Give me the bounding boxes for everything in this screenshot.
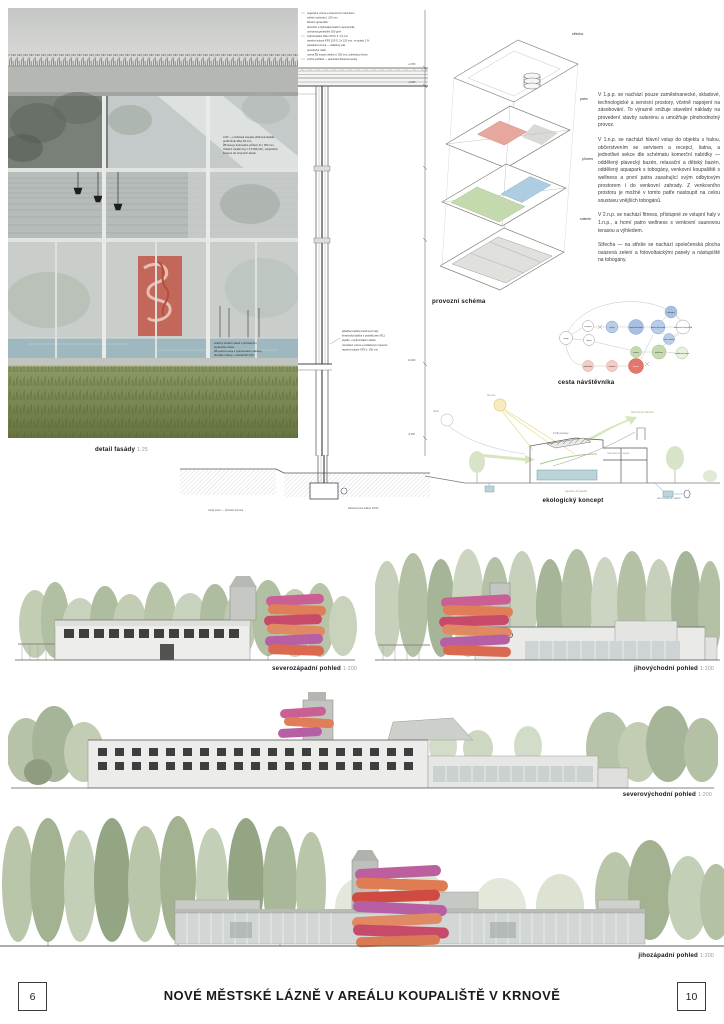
ground-note-2: štěrkové lože frakce 16/32 [348,506,379,510]
svg-text:tobogán: tobogán [667,311,675,314]
elevation-southeast [375,545,720,672]
svg-text:-0,450: -0,450 [408,433,415,436]
svg-text:bazénová hala: bazénová hala [629,327,643,329]
ground-hatch-right [284,473,430,497]
eco-green-arrows [483,416,637,464]
schema-label: provozní schéma [432,298,486,305]
svg-text:sauna: sauna [633,352,640,354]
plinth [8,358,298,366]
svg-text:kotvené do stropních desek: kotvené do stropních desek [223,151,257,155]
svg-text:rekuperace tepla: rekuperace tepla [607,451,630,455]
svg-text:skladba podlahy bazénové haly:: skladba podlahy bazénové haly: [342,329,379,333]
svg-text:filtrační geotextilie: filtrační geotextilie [307,20,328,24]
flow-node: šatna [584,335,595,346]
page-number-right: 10 [677,982,706,1011]
svg-text:střešní substrát tl. 100 mm: střešní substrát tl. 100 mm [307,16,338,20]
svg-text:hydroizolační fólie mPVC tl. 1: hydroizolační fólie mPVC tl. 1,5 mm [307,34,348,38]
slide-tower [278,692,334,742]
eco-label: ekologický koncept [473,497,673,504]
axon-ground-plate [442,164,566,226]
glass-facade [8,92,298,358]
exploded-axon: střecha patro přízemí suterén [440,20,600,305]
axon-floor-plate [446,106,570,168]
svg-text:přirozené větrání: přirozené větrání [631,410,654,414]
svg-text:recepce: recepce [584,325,592,328]
svg-text:tepelného mostu,: tepelného mostu, [214,345,235,349]
description-paragraph-3: V 2.n.p. se nachází fitness, přístupné z… [598,212,720,235]
svg-text:wellness: wellness [655,352,663,354]
facade-detail-foundation: rostlý terén — původní zemina štěrkové l… [180,455,430,520]
svg-text:tepelné čerpadlo: tepelné čerpadlo [565,489,588,493]
detail-label: detail fasády1:25 [95,446,148,453]
flow-node: relax. bazén [663,334,675,345]
elevation-se-label: jihovýchodní pohled1:200 [558,665,714,672]
svg-text:pokladna: pokladna [584,366,593,368]
flow-node: sauna [631,347,642,358]
elevation-northeast [8,688,718,800]
svg-text:tepelná izolace XPS tl. 160 mm: tepelná izolace XPS tl. 160 mm [342,347,378,351]
svg-text:patro: patro [580,97,588,101]
flow-node: bazénová hala [629,320,644,335]
flow-node: šatny [606,321,618,333]
foreground-grass [8,366,298,438]
svg-text:±0,000: ±0,000 [408,359,416,362]
flow-node: recepce [583,321,594,332]
svg-text:drenážní a hydroakumulační nop: drenážní a hydroakumulační nopová fólie [307,25,355,29]
description-text: V 1.p.p. se nachází pouze zaměstnanecké,… [598,92,720,272]
elevation-nw-label: severozápadní pohled1:200 [207,665,357,672]
flow-node: pokladna [583,361,594,372]
flow-node: venkovní koupaliště [674,320,693,334]
svg-text:vegetační vrstva s extenzivním: vegetační vrstva s extenzivním trávníkem [307,11,355,15]
svg-text:nosná ŽB stropní deska tl. 250: nosná ŽB stropní deska tl. 250 mm, pohle… [307,51,368,56]
axon-roof-plate [454,40,578,102]
axon-level-labels: střecha patro přízemí suterén [572,32,593,221]
description-paragraph-1: V 1.p.p. se nachází pouze zaměstnanecké,… [598,92,720,130]
svg-text:drenážní násyp + drenáž DN 100: drenážní násyp + drenáž DN 100 [214,353,254,357]
svg-text:plavecký bazén: plavecký bazén [651,327,666,329]
flow-node: venkovní terasa [675,347,691,359]
flow-node: zázemí [607,361,618,372]
facade-detail-drawing: vegetační vrstva s extenzivním trávníkem… [298,8,430,460]
ground-note: rostlý terén — původní zemina [208,508,244,512]
svg-text:tepelná izolace EPS 150 S, 2×: tepelná izolace EPS 150 S, 2× 120 mm, ve… [307,39,370,43]
svg-text:Izolační trojsklo Ug = 0,5 W/(: Izolační trojsklo Ug = 0,5 W/(m²K), celo… [223,147,278,151]
mid-annotations: skladba podlahy bazénové haly: keramická… [330,329,388,351]
eco-concept-diagram: slunce déšť FVE panely přirozené větrání… [425,388,720,500]
svg-text:ochranná geotextilie 300 g/m²: ochranná geotextilie 300 g/m² [307,29,341,33]
svg-text:penetrační nátěr: penetrační nátěr [307,48,326,52]
svg-text:lepidlo + hydroizolační stěrka: lepidlo + hydroizolační stěrka [342,338,376,342]
svg-text:roznášecí vrstva s podlahovým: roznášecí vrstva s podlahovým topením [342,343,388,347]
water-slide [352,850,449,947]
svg-text:FVE panely: FVE panely [553,431,569,435]
svg-text:suterén: suterén [580,217,591,221]
svg-text:parotěsná vrstva — asfaltový p: parotěsná vrstva — asfaltový pás [307,43,346,47]
board-title: NOVÉ MĚSTSKÉ LÁZNĚ V AREÁLU KOUPALIŠTĚ V… [0,988,724,1003]
svg-text:fitness: fitness [633,365,639,368]
svg-text:zázemí: zázemí [609,366,616,368]
pool-poster [138,256,182,336]
svg-text:přízemí: přízemí [582,157,593,161]
svg-text:venkovní koupaliště: venkovní koupaliště [674,326,693,329]
facade-render: LOP — modulová sloupko-příčková fasáda, … [8,8,298,438]
building [88,740,628,788]
flow-node: tobogán [665,306,677,318]
svg-text:+4,550: +4,550 [408,63,416,66]
flow-node: wellness [652,345,666,359]
elevation-ne-label: severovýchodní pohled1:200 [554,791,712,798]
svg-text:venkovní terasa: venkovní terasa [675,352,691,355]
svg-text:déšť: déšť [433,409,440,413]
visitor-flow-label: cesta návštěvníka [558,379,614,386]
ground-hatch-left [180,469,276,495]
description-paragraph-4: Střecha — na střeše se nachází společens… [598,242,720,265]
svg-text:keramická dlažba s protiskluze: keramická dlažba s protiskluzem R11 [342,334,385,338]
svg-text:+3,950: +3,950 [408,81,416,84]
rain-icon [441,414,525,454]
svg-text:vnitřní podhled — akustické dř: vnitřní podhled — akustické dřevěné lame… [307,57,358,61]
flow-node: plavecký bazén [651,320,666,334]
svg-text:profil hliník šířky 60 mm,: profil hliník šířky 60 mm, [223,139,252,143]
presentation-board: LOP — modulová sloupko-příčková fasáda, … [0,0,724,1024]
svg-text:střecha: střecha [572,32,583,36]
roof-slab [8,66,298,96]
wall-section [298,86,332,456]
svg-text:slunce: slunce [487,393,496,397]
axon-basement-plate [440,228,564,290]
svg-text:šatna: šatna [586,339,592,342]
roof-layer-annotations: vegetační vrstva s extenzivním trávníkem… [301,11,370,61]
pool-water [8,338,298,358]
description-paragraph-2: V 1.n.p. se nachází hlavní vstup do obje… [598,137,720,205]
svg-text:soklový izolační panel s přeru: soklový izolační panel s přerušením [214,341,257,345]
svg-text:LOP — modulová sloupko-příčkov: LOP — modulová sloupko-příčková fasáda, [223,135,275,139]
elevation-southwest [0,812,724,962]
roof-grasses [8,54,298,67]
svg-text:vstup: vstup [564,337,570,340]
flow-node: vstup [560,332,573,345]
elevation-northwest [10,568,360,672]
visitor-flow-diagram: vstup recepce šatna šatny bazénová hala … [552,288,720,380]
roof-monitor [388,718,473,740]
flow-node: fitness [629,359,644,374]
elevation-sw-label: jihozápadní pohled1:200 [554,952,714,959]
svg-text:relax. bazén: relax. bazén [663,338,675,341]
